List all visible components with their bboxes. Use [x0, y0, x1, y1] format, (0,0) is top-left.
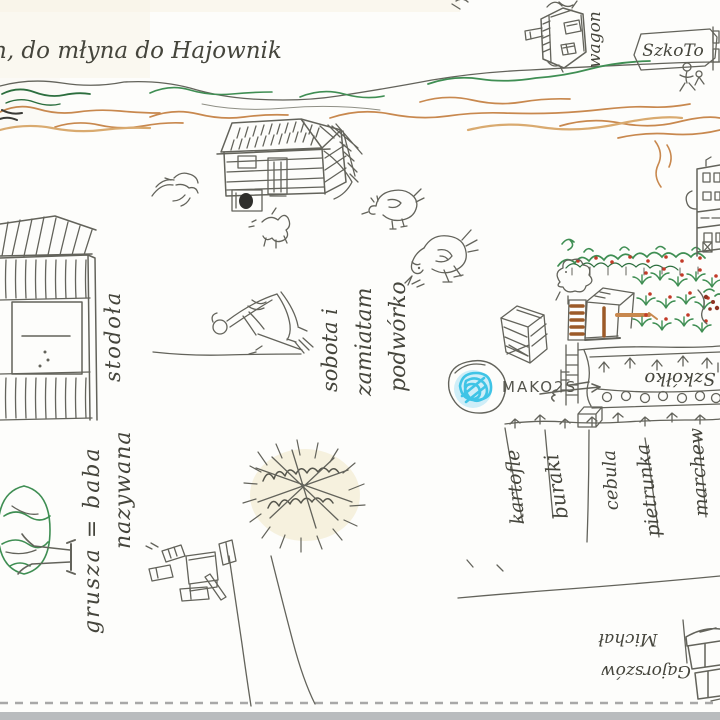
- garden-row-label-marchew: marchew: [685, 427, 713, 517]
- field-band: [0, 61, 720, 187]
- garden-row-label-cebula: cebula: [599, 449, 623, 510]
- farmer-name-line1: Gajorszów: [601, 661, 691, 681]
- apartment-building: [686, 157, 720, 256]
- farm-map-drawing: n, do młyna do Hajownik wagon SzkoTo: [0, 0, 720, 720]
- pear-tree-caption-line2: nazywana: [111, 430, 136, 549]
- crossed-out-scribble: [243, 440, 365, 552]
- barn-label: stodoła: [101, 291, 125, 382]
- pencil-bush: [556, 259, 592, 304]
- well-shed: [568, 288, 657, 340]
- storage-building: [683, 620, 720, 701]
- school-sign-label: SzkoTo: [642, 41, 703, 61]
- hen-2: [405, 230, 478, 287]
- pear-tree-caption-line1: grusza = baba: [80, 446, 105, 634]
- garden-row-label-pietrunka: pietrunka: [632, 443, 665, 538]
- dog: [249, 208, 290, 248]
- garden-row-label-kartofle: kartofle: [502, 449, 529, 525]
- nursery-label: Szkółko: [644, 368, 715, 389]
- route-caption: n, do młyna do Hajownik: [0, 38, 282, 64]
- ladder: [561, 343, 591, 406]
- farmhouse: [217, 119, 346, 196]
- garden-row-label-buraki: buraki: [539, 452, 573, 521]
- wagon-drawing: [525, 8, 586, 72]
- sweeping-caption-line2: zamiatam: [352, 287, 377, 397]
- pear-tree: [0, 486, 75, 574]
- sweeping-caption-line3: podwórko: [386, 281, 411, 392]
- hen-1: [362, 189, 424, 229]
- wagon-label: wagon: [585, 11, 605, 68]
- pond-ball: [449, 361, 506, 413]
- scanned-drawing: n, do młyna do Hajownik wagon SzkoTo: [0, 0, 720, 720]
- dog-kennel: [232, 190, 262, 211]
- bench-table-set: [146, 540, 236, 601]
- farmer-name-line2: Michał: [598, 629, 658, 649]
- lean-to: [324, 124, 362, 199]
- flying-bird: [152, 173, 198, 206]
- sweeping-caption-line1: sobota i: [318, 308, 342, 392]
- barn: [0, 216, 97, 420]
- sweeping-person: [153, 292, 313, 355]
- crate: [501, 306, 547, 363]
